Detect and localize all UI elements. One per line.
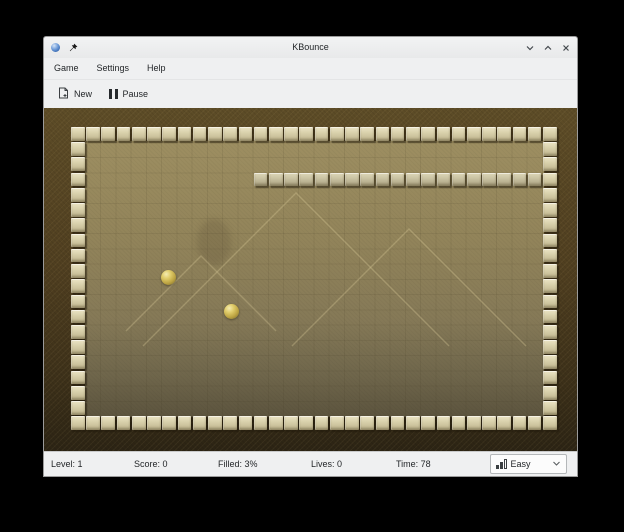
border-tile <box>71 325 85 339</box>
border-tile <box>254 127 268 141</box>
border-tile <box>71 157 85 171</box>
statusbar: Level: 1 Score: 0 Filled: 3% Lives: 0 Ti… <box>44 451 577 476</box>
border-tile <box>543 173 557 187</box>
wall-tile <box>437 173 451 187</box>
maximize-button[interactable] <box>543 43 553 53</box>
border-tile <box>543 127 557 141</box>
border-tile <box>467 127 481 141</box>
wall-tile <box>421 173 435 187</box>
border-tile <box>101 127 115 141</box>
border-tile <box>71 355 85 369</box>
border-tile <box>543 310 557 324</box>
border-tile <box>71 234 85 248</box>
border-tile <box>223 416 237 430</box>
score-status: Score: 0 <box>134 459 168 469</box>
border-tile <box>360 127 374 141</box>
wall-tile <box>330 173 344 187</box>
wall-tile <box>269 173 283 187</box>
border-tile <box>132 416 146 430</box>
border-tile <box>147 416 161 430</box>
new-button-label: New <box>74 89 92 99</box>
border-tile <box>239 127 253 141</box>
border-tile <box>71 173 85 187</box>
toolbar: New Pause <box>44 79 577 108</box>
border-tile <box>421 127 435 141</box>
wall-tile <box>452 173 466 187</box>
border-tile <box>299 127 313 141</box>
close-button[interactable] <box>561 43 571 53</box>
border-tile <box>86 416 100 430</box>
border-tile <box>208 127 222 141</box>
menubar: Game Settings Help <box>44 58 577 79</box>
border-tile <box>71 188 85 202</box>
border-tile <box>543 416 557 430</box>
border-tile <box>269 416 283 430</box>
border-tile <box>71 340 85 354</box>
border-tile <box>543 188 557 202</box>
border-tile <box>543 264 557 278</box>
border-tile <box>543 340 557 354</box>
border-tile <box>543 249 557 263</box>
border-tile <box>269 127 283 141</box>
border-tile <box>71 416 85 430</box>
border-tile <box>376 127 390 141</box>
wall-tile <box>528 173 542 187</box>
border-tile <box>543 386 557 400</box>
border-tile <box>528 127 542 141</box>
border-tile <box>71 264 85 278</box>
border-tile <box>71 127 85 141</box>
border-tile <box>513 127 527 141</box>
border-tile <box>543 157 557 171</box>
border-tile <box>178 127 192 141</box>
border-tile <box>391 127 405 141</box>
border-tile <box>193 127 207 141</box>
pause-icon <box>109 89 118 99</box>
border-tile <box>421 416 435 430</box>
minimize-button[interactable] <box>525 43 535 53</box>
level-status: Level: 1 <box>51 459 83 469</box>
wall-tile <box>497 173 511 187</box>
border-tile <box>528 416 542 430</box>
titlebar[interactable]: KBounce <box>44 37 577 58</box>
border-tile <box>101 416 115 430</box>
ball <box>161 270 176 285</box>
border-tile <box>71 401 85 415</box>
border-tile <box>117 127 131 141</box>
border-tile <box>147 127 161 141</box>
wall-tile <box>482 173 496 187</box>
game-board[interactable] <box>44 108 577 451</box>
ball <box>224 304 239 319</box>
border-tile <box>71 386 85 400</box>
border-tile <box>437 127 451 141</box>
border-tile <box>497 127 511 141</box>
wall-tile <box>376 173 390 187</box>
border-tile <box>254 416 268 430</box>
border-tile <box>345 416 359 430</box>
border-tile <box>406 416 420 430</box>
border-tile <box>162 127 176 141</box>
border-tile <box>71 249 85 263</box>
border-tile <box>452 416 466 430</box>
difficulty-value: Easy <box>511 459 531 469</box>
border-tile <box>543 355 557 369</box>
time-status: Time: 78 <box>396 459 431 469</box>
border-tile <box>284 127 298 141</box>
border-tile <box>71 203 85 217</box>
border-tile <box>330 127 344 141</box>
border-tile <box>345 127 359 141</box>
border-tile <box>71 310 85 324</box>
kbounce-window: KBounce Game Settings Help <box>43 36 578 477</box>
lives-status: Lives: 0 <box>311 459 342 469</box>
pause-button-label: Pause <box>123 89 149 99</box>
wall-tile <box>406 173 420 187</box>
border-tile <box>391 416 405 430</box>
border-tile <box>315 127 329 141</box>
wall-tile <box>254 173 268 187</box>
border-tile <box>467 416 481 430</box>
border-tile <box>315 416 329 430</box>
border-tile <box>543 279 557 293</box>
difficulty-icon <box>496 459 507 469</box>
border-tile <box>543 234 557 248</box>
border-tile <box>543 142 557 156</box>
border-tile <box>482 416 496 430</box>
border-tile <box>162 416 176 430</box>
wall-tile <box>360 173 374 187</box>
border-tile <box>543 401 557 415</box>
border-tile <box>482 127 496 141</box>
new-game-button[interactable]: New <box>58 87 92 101</box>
wall-tile <box>284 173 298 187</box>
window-title: KBounce <box>44 37 577 58</box>
border-tile <box>330 416 344 430</box>
border-tile <box>452 127 466 141</box>
border-tile <box>376 416 390 430</box>
wall-tile <box>513 173 527 187</box>
border-tile <box>117 416 131 430</box>
wall-tile <box>299 173 313 187</box>
border-tile <box>543 325 557 339</box>
border-tile <box>513 416 527 430</box>
wall-tile <box>345 173 359 187</box>
border-tile <box>497 416 511 430</box>
menu-game[interactable]: Game <box>45 58 88 79</box>
wall-tile <box>391 173 405 187</box>
border-tile <box>299 416 313 430</box>
border-tile <box>132 127 146 141</box>
border-tile <box>71 142 85 156</box>
menu-help[interactable]: Help <box>138 58 175 79</box>
border-tile <box>284 416 298 430</box>
border-tile <box>223 127 237 141</box>
border-tile <box>86 127 100 141</box>
border-tile <box>437 416 451 430</box>
difficulty-select[interactable]: Easy <box>490 454 567 474</box>
border-tile <box>360 416 374 430</box>
border-tile <box>543 371 557 385</box>
border-tile <box>71 295 85 309</box>
border-tile <box>178 416 192 430</box>
wall-tile <box>315 173 329 187</box>
border-tile <box>71 279 85 293</box>
new-document-icon <box>58 87 69 101</box>
border-tile <box>193 416 207 430</box>
pause-button[interactable]: Pause <box>109 89 148 99</box>
chevron-down-icon <box>552 459 561 470</box>
border-tile <box>239 416 253 430</box>
border-tile <box>543 218 557 232</box>
border-tile <box>406 127 420 141</box>
wall-tile <box>467 173 481 187</box>
filled-status: Filled: 3% <box>218 459 258 469</box>
border-tile <box>543 203 557 217</box>
border-tile <box>71 371 85 385</box>
border-tile <box>543 295 557 309</box>
border-tile <box>208 416 222 430</box>
border-tile <box>71 218 85 232</box>
menu-settings[interactable]: Settings <box>88 58 139 79</box>
